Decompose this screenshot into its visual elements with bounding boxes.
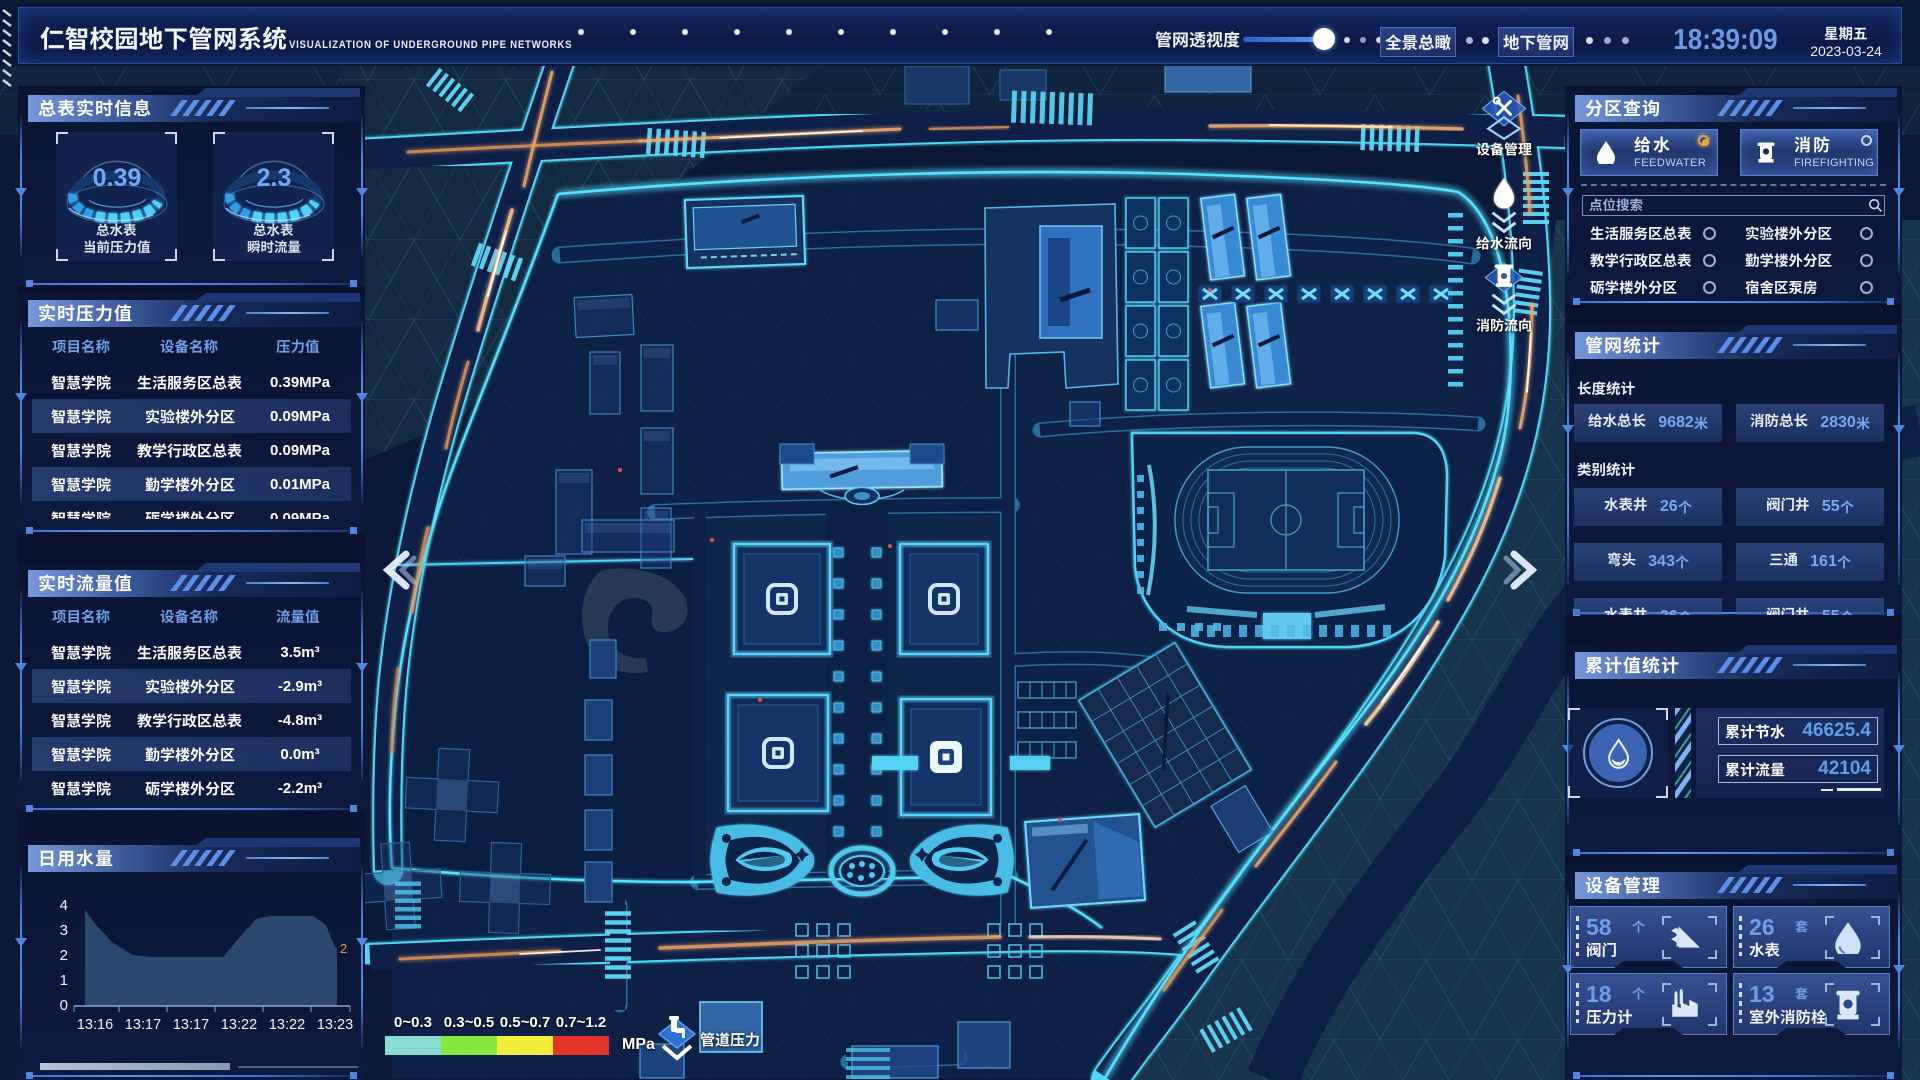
svg-text:13:17: 13:17 (125, 1017, 161, 1033)
svg-text:2: 2 (60, 947, 68, 964)
svg-text:13:23: 13:23 (317, 1017, 353, 1033)
svg-text:4: 4 (60, 897, 68, 914)
svg-text:1: 1 (60, 972, 68, 989)
svg-text:13:17: 13:17 (173, 1017, 209, 1033)
svg-text:2.3: 2.3 (257, 164, 292, 192)
svg-text:3: 3 (60, 922, 68, 939)
svg-text:13:16: 13:16 (77, 1017, 113, 1033)
svg-text:2: 2 (340, 941, 347, 956)
svg-text:0.39: 0.39 (93, 164, 142, 192)
svg-text:0: 0 (60, 997, 68, 1014)
svg-text:13:22: 13:22 (269, 1017, 305, 1033)
svg-text:13:22: 13:22 (221, 1017, 257, 1033)
